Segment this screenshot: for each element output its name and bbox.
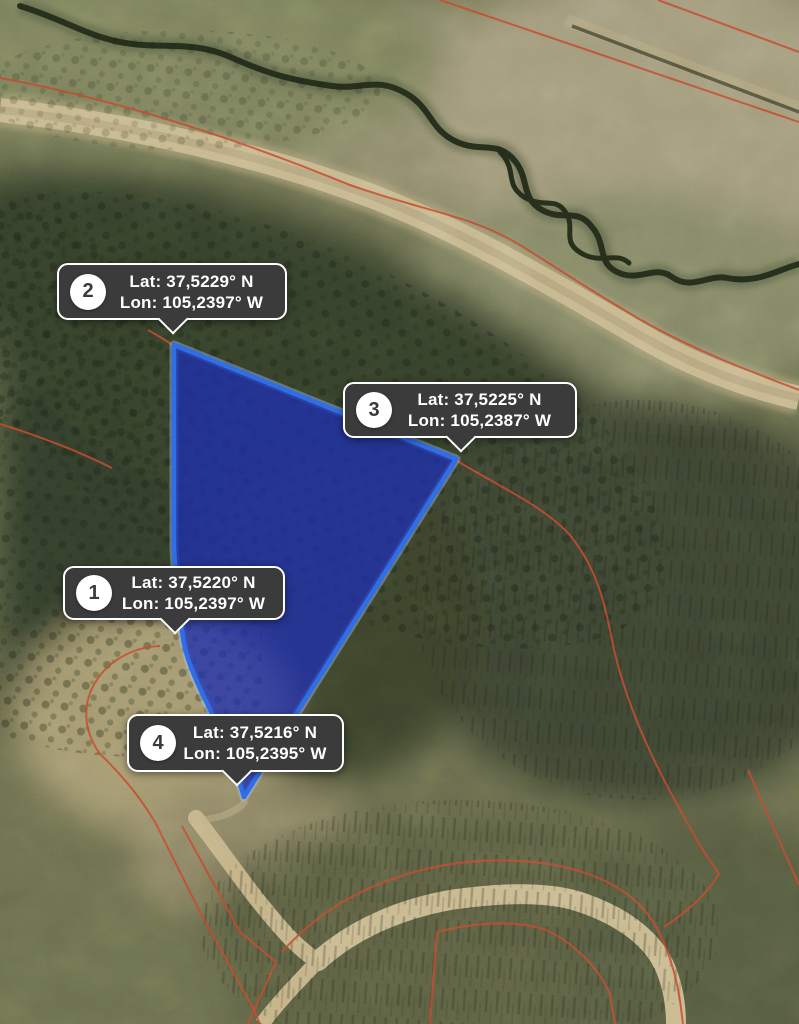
marker-longitude: Lon: 105,2397° W [118, 593, 269, 614]
marker-longitude: Lon: 105,2387° W [398, 410, 561, 431]
marker-latitude: Lat: 37,5229° N [112, 271, 271, 292]
marker-latitude: Lat: 37,5220° N [118, 572, 269, 593]
satellite-imagery [0, 0, 799, 1024]
marker-tooltip-2[interactable]: 2 Lat: 37,5229° N Lon: 105,2397° W [57, 263, 287, 320]
marker-tooltip-1[interactable]: 1 Lat: 37,5220° N Lon: 105,2397° W [63, 566, 285, 620]
marker-tooltip-3[interactable]: 3 Lat: 37,5225° N Lon: 105,2387° W [343, 382, 577, 438]
marker-number-badge: 3 [356, 392, 392, 428]
marker-coordinates: Lat: 37,5220° N Lon: 105,2397° W [112, 572, 283, 614]
marker-coordinates: Lat: 37,5225° N Lon: 105,2387° W [392, 389, 575, 431]
marker-longitude: Lon: 105,2395° W [182, 743, 328, 764]
marker-coordinates: Lat: 37,5216° N Lon: 105,2395° W [176, 722, 342, 764]
marker-latitude: Lat: 37,5225° N [398, 389, 561, 410]
marker-number-badge: 1 [76, 575, 112, 611]
marker-number: 1 [88, 582, 99, 605]
marker-number-badge: 4 [140, 725, 176, 761]
marker-number-badge: 2 [70, 274, 106, 310]
marker-number: 2 [82, 280, 93, 303]
marker-tooltip-4[interactable]: 4 Lat: 37,5216° N Lon: 105,2395° W [127, 714, 344, 772]
marker-longitude: Lon: 105,2397° W [112, 292, 271, 313]
parcel-map-viewport[interactable]: 2 Lat: 37,5229° N Lon: 105,2397° W 3 Lat… [0, 0, 799, 1024]
marker-number: 3 [368, 399, 379, 422]
marker-number: 4 [152, 732, 163, 755]
marker-latitude: Lat: 37,5216° N [182, 722, 328, 743]
marker-coordinates: Lat: 37,5229° N Lon: 105,2397° W [106, 271, 285, 313]
